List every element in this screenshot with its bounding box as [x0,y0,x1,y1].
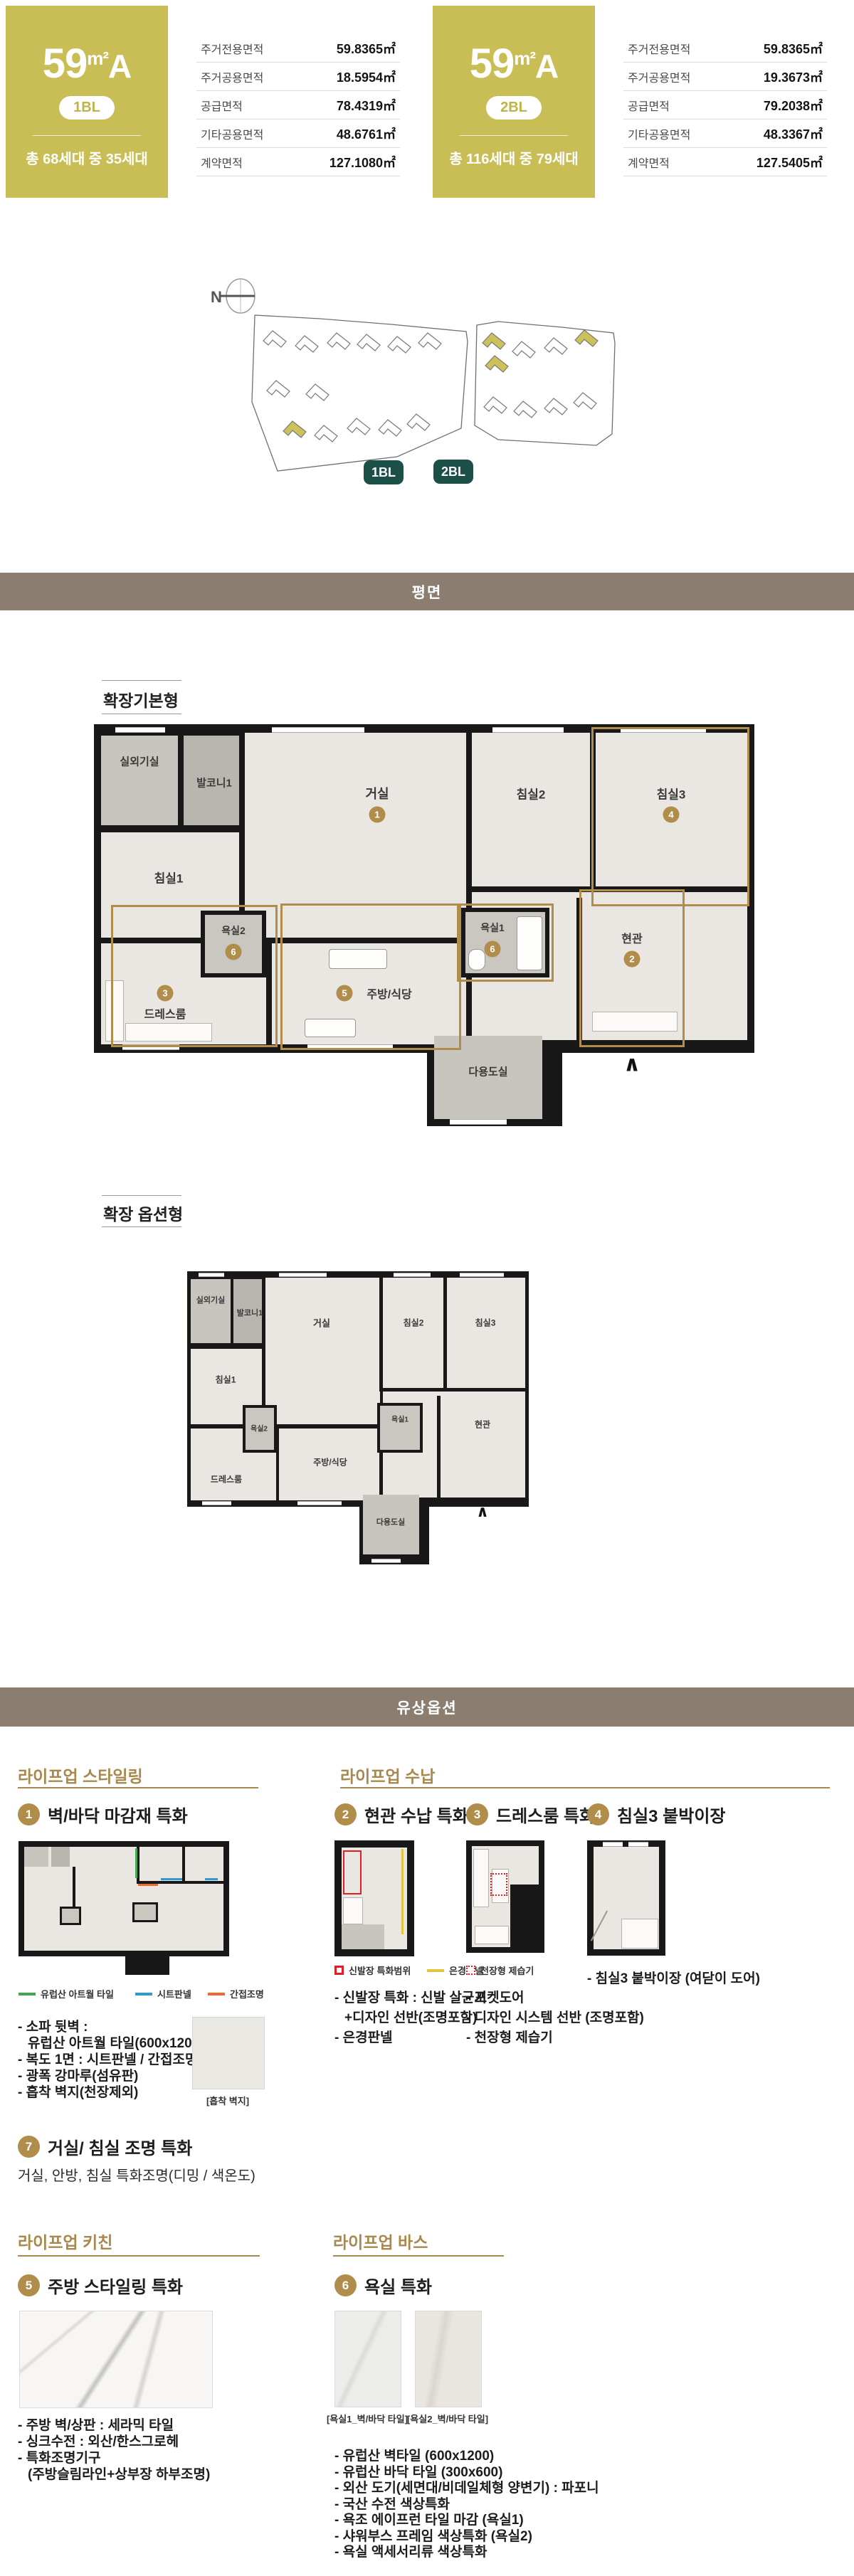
svg-text:1BL: 1BL [371,465,396,479]
group-underline [18,2255,260,2257]
row-value: 127.5405㎡ [757,153,823,171]
bath1-tile-photo [334,2311,401,2407]
option-1-legend-sheet: 시트판넬 [135,1987,191,2000]
unit-size-type: A [535,48,558,85]
legend-swatch-blue [135,1993,152,1995]
unit-size-type: A [108,48,131,85]
ceramic-tile-photo [19,2311,213,2408]
window [272,727,364,733]
shoe-cabinet-highlight [343,1850,362,1894]
option-3-title: 드레스룸 특화 [496,1802,595,1827]
row-value: 48.6761㎡ [337,124,396,143]
floor-plan-1: 실외기실 발코니1 침실1 거실 1 침실2 침실3 4 욕실2 6 3 드레스… [94,724,754,1126]
bullet: - 천장형 제습기 [466,2028,644,2048]
room-badge-kitchen: 5 [337,985,353,1002]
option-1-legend-artwall: 유럽산 아트월 타일 [19,1987,114,2000]
bullet: - 외산 도기(세면대/비데일체형 양변기) : 파포니 [334,2481,599,2497]
option-6-bullets: - 유럽산 벽타일 (600x1200) - 유럽산 바닥 타일 (300x60… [334,2449,599,2561]
bullet: - 포켓도어 [466,1988,644,2008]
bullet: (주방슬림라인+상부장 하부조명) [18,2466,210,2483]
window [199,1273,224,1277]
bath2-tile-photo [415,2311,482,2407]
room-label-dress: 드레스룸 [144,1005,186,1022]
unit-size-number: 59 [470,41,515,87]
option-6-title: 욕실 특화 [364,2273,432,2298]
room-bath1 [377,1403,423,1453]
option-4-title: 침실3 붙박이장 [617,1802,726,1827]
table-row: 계약면적127.1080㎡ [196,148,400,176]
table-row: 주거공용면적19.3673㎡ [623,63,827,91]
section-bar-options: 유상옵션 [0,1687,854,1727]
row-label: 계약면적 [628,154,670,171]
option-1-title: 벽/바닥 마감재 특화 [48,1802,188,1827]
option-outline-bath1 [457,903,554,982]
bullet: - 디자인 시스템 선반 (조명포함) [466,2008,644,2028]
option-7-subtitle: 거실, 안방, 침실 특화조명(디밍 / 색온도) [18,2164,255,2185]
bullet: - 광폭 강마루(섬유판) [18,2068,204,2084]
option-2-badge: 2 [334,1803,357,1825]
window [202,1501,231,1505]
bullet: - 샤워부스 프레임 색상특화 (욕실2) [334,2529,599,2545]
room-label-bed1: 침실1 [154,869,184,886]
option-2-header: 2 현관 수납 특화 [334,1802,468,1827]
window [460,1273,504,1277]
site-plan: N 1BL 2BL [178,242,676,498]
bath2-tile-caption: [욕실2_벽/바닥 타일] [407,2412,488,2425]
option-3-header: 3 드레스룸 특화 [466,1802,595,1827]
row-label: 주거전용면적 [201,40,263,57]
room-label-kitchen: 주방/식당 [367,985,411,1002]
group-title-bath: 라이프업 바스 [333,2229,428,2253]
bath1-tile-caption: [욕실1_벽/바닥 타일] [327,2412,408,2425]
north-compass: N [211,279,255,313]
table-row: 주거전용면적59.8365㎡ [196,34,400,63]
group-title-storage: 라이프업 수납 [340,1763,435,1787]
room-ac [101,736,178,825]
bullet: - 은경판넬 [334,2028,487,2048]
wallpaper-swatch [192,2017,265,2089]
option-1-legend-light: 간접조명 [208,1987,264,2000]
option-3-badge: 3 [466,1803,488,1825]
room-bed2 [472,733,590,886]
option-4-header: 4 침실3 붙박이장 [587,1802,726,1827]
row-label: 계약면적 [201,154,243,171]
row-value: 59.8365㎡ [337,39,396,58]
room-label-ac: 실외기실 [196,1294,225,1305]
unit-size-unit: m² [514,48,535,69]
bullet: - 소파 뒷벽 : [18,2019,204,2035]
option-4-miniplan [587,1840,665,1956]
title-rule-bottom [102,714,181,714]
option-7-title: 거실/ 침실 조명 특화 [48,2134,192,2159]
row-label: 공급면적 [201,97,243,114]
area-table-1bl: 주거전용면적59.8365㎡ 주거공용면적18.5954㎡ 공급면적78.431… [168,6,421,198]
wall [443,1278,447,1388]
title-rule-top [102,680,181,681]
row-value: 127.1080㎡ [330,153,396,171]
option-1-miniplan [19,1841,229,1956]
window [279,1273,327,1277]
option-4-bullets: - 침실3 붙박이장 (여닫이 도어) [587,1969,760,1989]
option-6-header: 6 욕실 특화 [334,2273,432,2298]
window [450,1119,507,1125]
option-outline-entry [579,889,685,1047]
bullet: - 유럽산 바닥 타일 (300x600) [334,2465,599,2481]
floor-plan-2: 실외기실 발코니1 침실1 거실 침실2 침실3 욕실2 드레스룸 주방/식당 … [187,1271,529,1564]
legend-swatch-green [19,1993,36,1995]
row-value: 79.2038㎡ [764,96,823,115]
bullet: +디자인 선반(조명포함) [334,2008,487,2028]
room-label-bed3: 침실3 [657,785,686,802]
option-2-title: 현관 수납 특화 [364,1802,468,1827]
room-bed2 [383,1278,444,1388]
option-7-badge: 7 [18,2136,40,2158]
option-2-bullets: - 신발장 특화 : 신발 살균기 +디자인 선반(조명포함) - 은경판넬 [334,1988,487,2048]
row-label: 주거전용면적 [628,40,690,57]
option-3-miniplan [466,1840,544,1953]
row-value: 78.4319㎡ [337,96,396,115]
row-value: 48.3367㎡ [764,124,823,143]
legend-swatch-orange [208,1993,225,1995]
wall [466,733,472,886]
room-label-bath2: 욕실2 [221,923,246,938]
bullet: - 복도 1면 : 시트판넬 / 간접조명 [18,2052,204,2068]
room-label-bed2: 침실2 [404,1317,424,1329]
wall [379,1278,383,1388]
room-label-kitchen: 주방/식당 [313,1456,347,1468]
option-1-miniplan-ext [125,1956,169,1975]
section-bar-options-label: 유상옵션 [396,1697,457,1718]
room-label-living: 거실 [365,784,389,802]
table-row: 계약면적127.5405㎡ [623,148,827,176]
room-label-balcony1: 발코니1 [237,1307,263,1318]
option-3-bullets: - 포켓도어 - 디자인 시스템 선반 (조명포함) - 천장형 제습기 [466,1988,644,2048]
option-6-badge: 6 [334,2274,357,2296]
room-label-bath2: 욕실2 [251,1423,268,1433]
room-badge-entry: 2 [624,951,640,968]
room-badge-bed3: 4 [663,807,680,823]
table-row: 기타공용면적48.6761㎡ [196,120,400,148]
room-badge-dress: 3 [157,985,174,1002]
legend-label: 유럽산 아트월 타일 [41,1987,114,2000]
legend-label: 신발장 특화범위 [349,1963,411,1977]
legend-red-dotted-box [466,1966,475,1975]
dehumidifier-highlight [490,1873,507,1896]
unit-card-1bl-left: 59m²A 1BL 총 68세대 중 35세대 [6,6,168,198]
legend-red-box [334,1966,344,1975]
row-label: 공급면적 [628,97,670,114]
room-label-bath1: 욕실1 [391,1414,408,1424]
bullet: 유럽산 아트월 타일(600x1200) [18,2035,204,2052]
bullet: - 흡착 벽지(천장제외) [18,2084,204,2101]
room-label-entry: 현관 [621,929,642,946]
table-row: 공급면적79.2038㎡ [623,91,827,120]
row-value: 59.8365㎡ [764,39,823,58]
svg-text:2BL: 2BL [441,465,465,479]
site-label-2bl: 2BL [433,460,473,484]
room-badge-bath2: 6 [226,944,242,960]
legend-swatch-yellow [427,1969,444,1972]
north-label: N [211,288,222,306]
window [492,727,564,733]
mirror-panel-line [401,1849,404,1934]
accent-artwall-tile [135,1848,137,1878]
legend-label: 간접조명 [230,1987,264,2000]
room-label-living: 거실 [313,1316,330,1330]
option-2-miniplan [334,1840,414,1956]
row-label: 주거공용면적 [201,68,263,85]
row-value: 19.3673㎡ [764,68,823,86]
unit-size-number: 59 [43,41,88,87]
title-rule-bottom [102,1226,181,1227]
wall [239,733,245,825]
legend-label: 시트판넬 [157,1987,191,2000]
room-label-utility: 다용도실 [468,1064,507,1079]
wallpaper-swatch-caption: [흡착 벽지] [206,2094,249,2107]
accent-sheet-panel-2 [205,1878,218,1880]
option-3-legend-dehumid: 천장형 제습기 [466,1963,534,1977]
option-5-badge: 5 [18,2274,40,2296]
bullet: - 특화조명기구 [18,2450,210,2466]
room-label-bed1: 침실1 [216,1374,236,1386]
room-label-utility: 다용도실 [376,1516,405,1527]
row-label: 기타공용면적 [628,125,690,142]
window [371,1559,401,1563]
wall [191,1343,265,1347]
row-label: 기타공용면적 [201,125,263,142]
group-title-styling: 라이프업 스타일링 [18,1763,143,1787]
floor-plan-1-title: 확장기본형 [103,687,179,711]
group-title-kitchen: 라이프업 키친 [18,2229,112,2253]
window [394,1273,431,1277]
room-label-bed3: 침실3 [475,1317,496,1329]
block-pill-2bl: 2BL [486,96,542,120]
room-living [265,1278,380,1424]
option-5-bullets: - 주방 벽/상판 : 세라믹 타일 - 싱크수전 : 외산/한스그로헤 - 특… [18,2417,210,2483]
brochure-page: { "colors": { "olive": "#c9bd55", "gold"… [0,0,854,2576]
bullet: - 욕실 액세서리류 색상특화 [334,2545,599,2561]
bullet: - 신발장 특화 : 신발 살균기 [334,1988,487,2008]
bullet: - 침실3 붙박이장 (여닫이 도어) [587,1969,760,1989]
site-label-1bl: 1BL [364,460,404,484]
unit-size-1bl: 59m²A [6,40,168,88]
option-outline-kitchen [280,903,461,1050]
group-underline [18,1787,258,1788]
entry-direction-arrow: ∧ [623,1052,640,1077]
row-label: 주거공용면적 [628,68,690,85]
room-bed3 [447,1278,525,1394]
households-2bl: 총 116세대 중 79세대 [433,147,595,168]
room-ac [191,1279,231,1343]
wall [437,1396,441,1498]
accent-indirect-light [138,1884,158,1886]
window [297,1501,342,1505]
option-2-legend-shoe: 신발장 특화범위 [334,1963,411,1977]
table-row: 주거전용면적59.8365㎡ [623,34,827,63]
room-label-ac: 실외기실 [120,754,159,769]
wall [101,825,245,832]
group-underline [340,1787,830,1788]
divider [33,135,141,136]
room-label-bath1: 욕실1 [480,921,505,935]
room-label-dress: 드레스룸 [211,1473,242,1485]
option-outline-dress [111,905,278,1047]
bullet: - 주방 벽/상판 : 세라믹 타일 [18,2417,210,2434]
title-rule-top [102,1195,181,1196]
option-5-header: 5 주방 스타일링 특화 [18,2273,183,2298]
floor-plan-2-title: 확장 옵션형 [103,1201,183,1225]
unit-size-2bl: 59m²A [433,40,595,88]
room-label-bed2: 침실2 [517,785,546,802]
section-bar-plan: 평면 [0,573,854,610]
households-1bl: 총 68세대 중 35세대 [6,147,168,168]
window [115,727,165,733]
bullet: - 국산 수전 색상특화 [334,2497,599,2513]
bullet: - 싱크수전 : 외산/한스그로헤 [18,2434,210,2450]
unit-card-2bl-left: 59m²A 2BL 총 116세대 중 79세대 [433,6,595,198]
accent-sheet-panel [161,1878,182,1880]
option-4-badge: 4 [587,1803,609,1825]
row-value: 18.5954㎡ [337,68,396,86]
block-pill-1bl: 1BL [59,96,115,120]
option-1-badge: 1 [18,1803,40,1825]
option-7-header: 7 거실/ 침실 조명 특화 [18,2134,192,2159]
room-badge-living: 1 [369,807,386,823]
entry-direction-arrow: ∧ [476,1502,489,1521]
built-in-wardrobe [621,1919,658,1949]
option-1-header: 1 벽/바닥 마감재 특화 [18,1802,188,1827]
room-label-entry: 현관 [475,1419,490,1431]
table-row: 기타공용면적48.3367㎡ [623,120,827,148]
table-row: 공급면적78.4319㎡ [196,91,400,120]
option-5-title: 주방 스타일링 특화 [48,2273,183,2298]
option-1-bullets: - 소파 뒷벽 : 유럽산 아트월 타일(600x1200) - 복도 1면 :… [18,2019,204,2101]
group-underline [333,2255,504,2257]
room-badge-bath1: 6 [485,941,501,958]
legend-label: 천장형 제습기 [480,1963,534,1977]
bullet: - 유럽산 벽타일 (600x1200) [334,2449,599,2465]
unit-size-unit: m² [87,48,108,69]
wall [379,1388,525,1392]
area-table-2bl: 주거전용면적59.8365㎡ 주거공용면적19.3673㎡ 공급면적79.203… [595,6,848,198]
section-bar-plan-label: 평면 [412,581,443,603]
bullet: - 욕조 에이프런 타일 마감 (욕실1) [334,2513,599,2529]
divider [460,135,568,136]
room-label-balcony1: 발코니1 [196,775,232,790]
table-row: 주거공용면적18.5954㎡ [196,63,400,91]
